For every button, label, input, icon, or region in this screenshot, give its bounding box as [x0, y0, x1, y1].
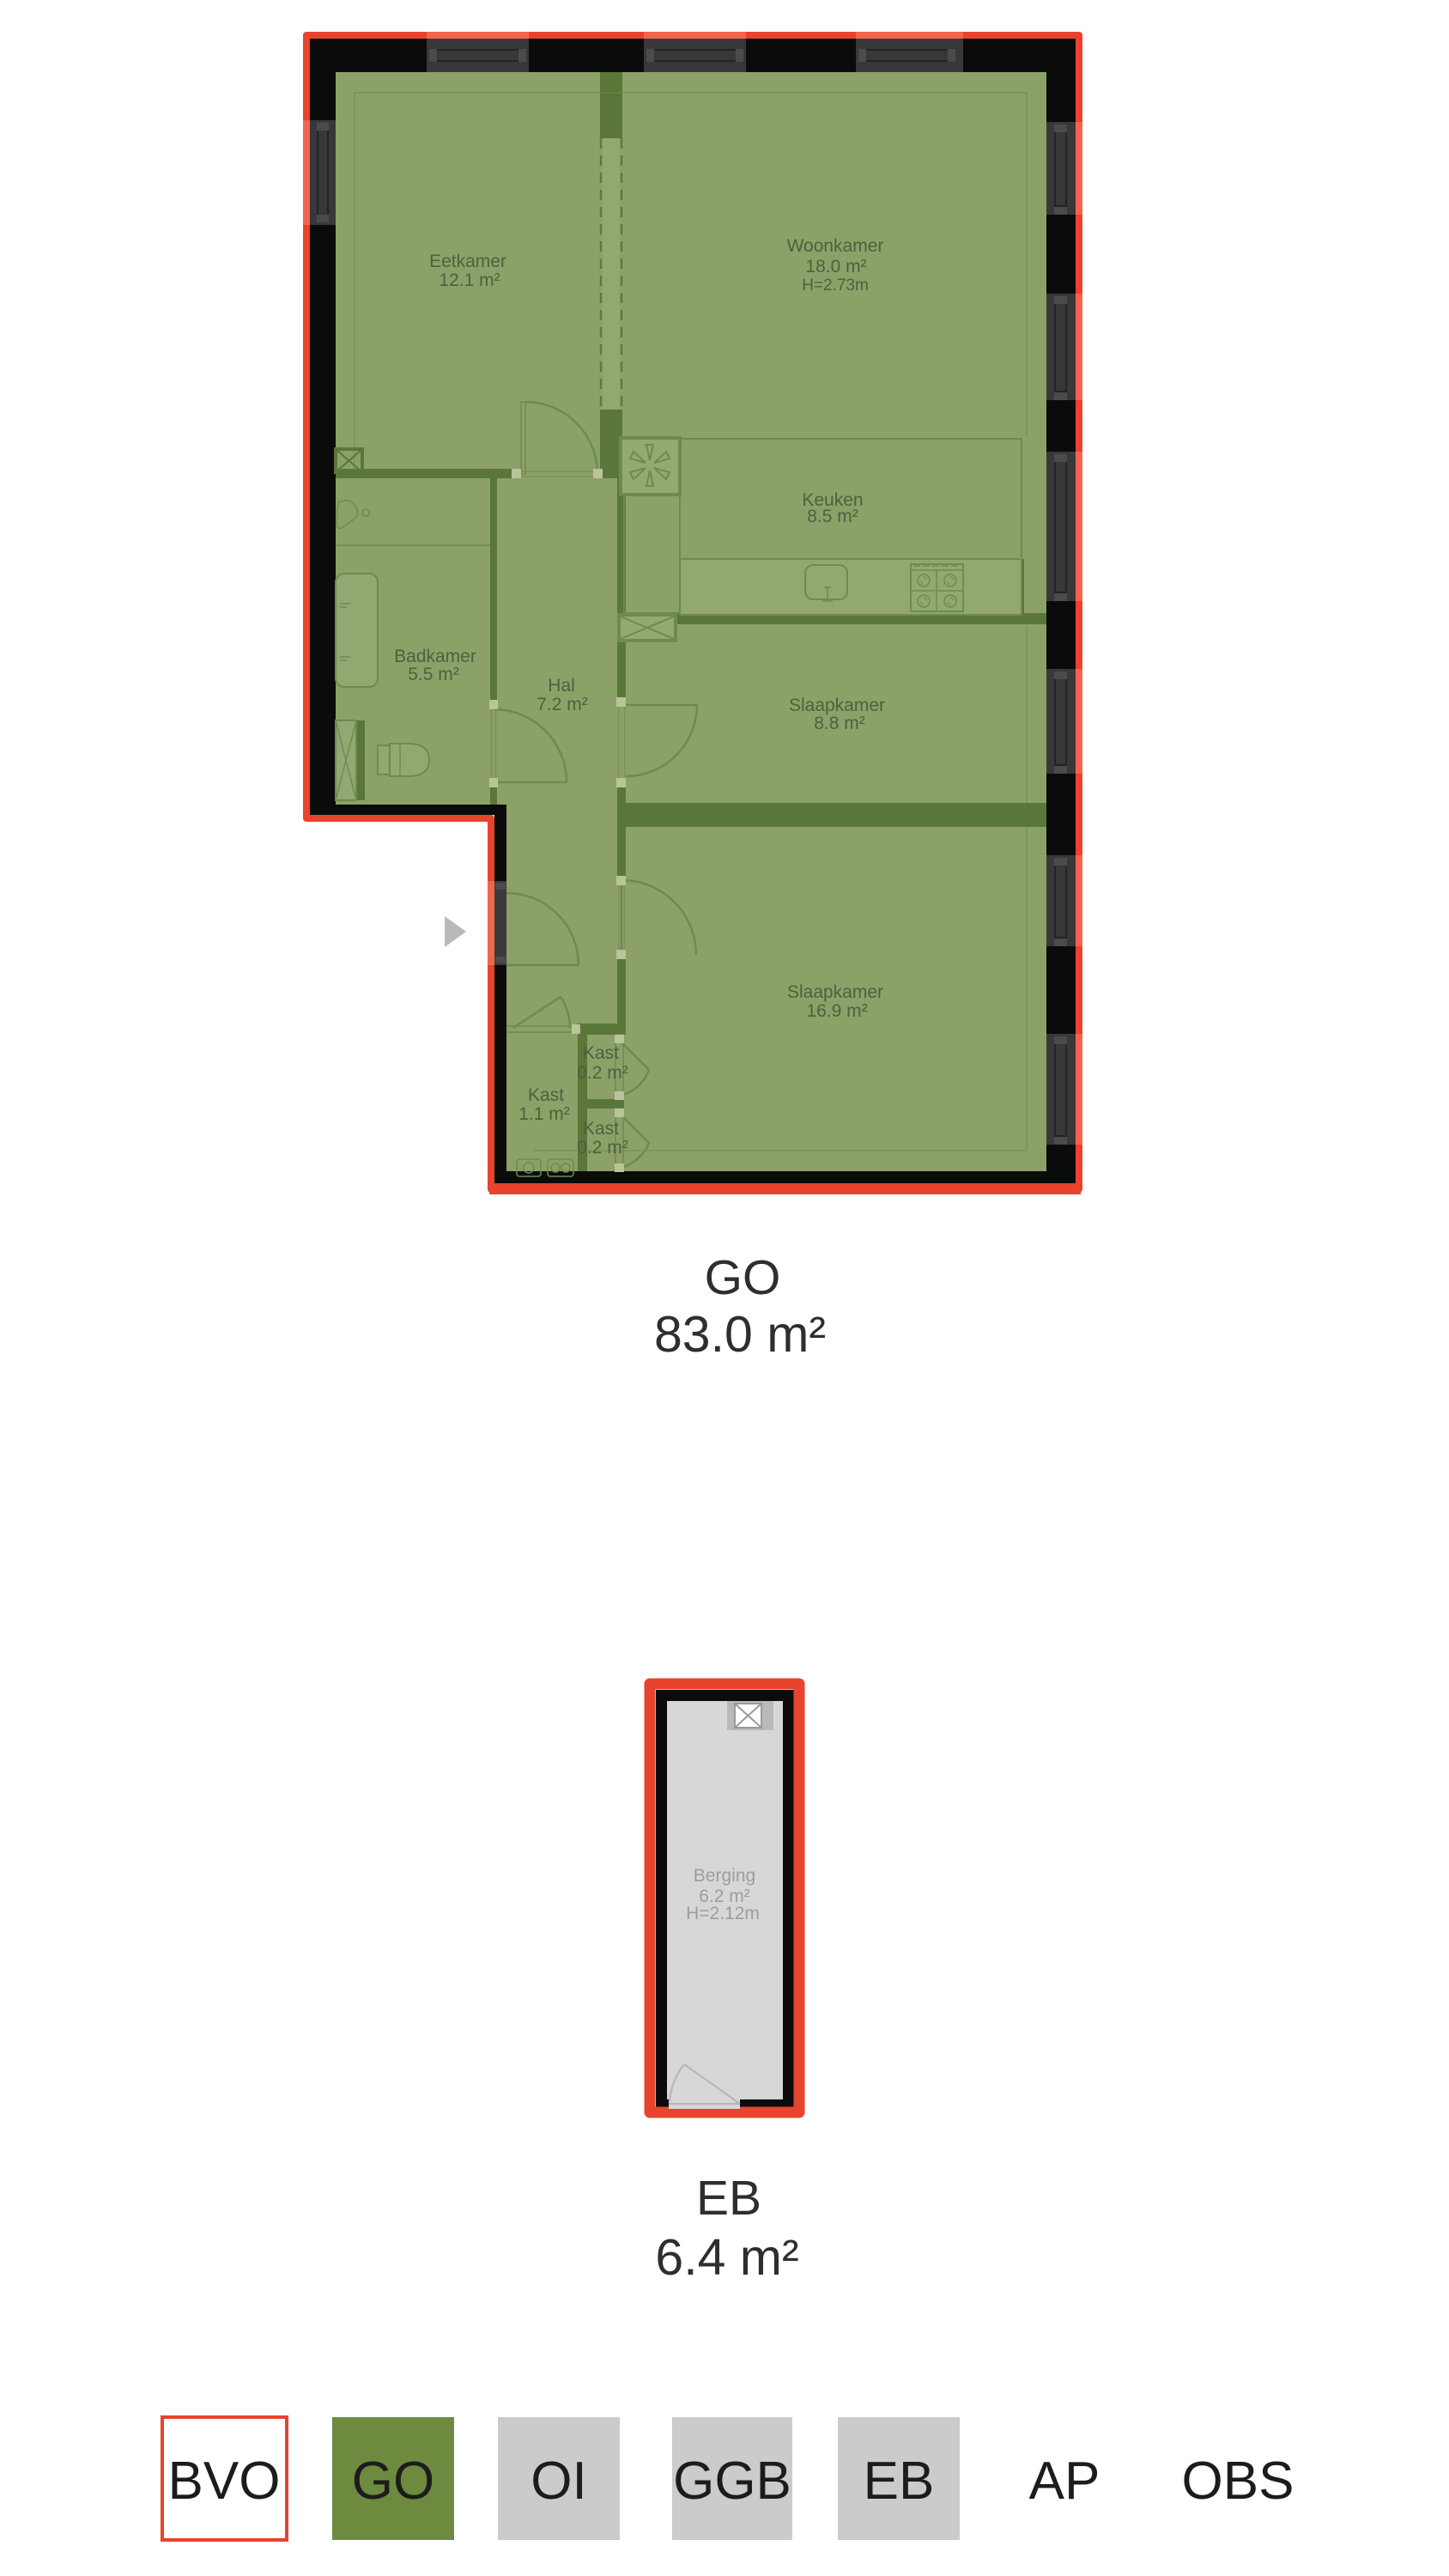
svg-text:OBS: OBS: [1182, 2451, 1294, 2511]
svg-text:16.9 m²: 16.9 m²: [806, 1001, 867, 1021]
svg-text:Woonkamer: Woonkamer: [787, 236, 884, 256]
svg-text:EB: EB: [864, 2451, 935, 2511]
svg-text:6.4 m²: 6.4 m²: [655, 2229, 798, 2286]
svg-text:12.1 m²: 12.1 m²: [439, 270, 500, 290]
svg-text:18.0 m²: 18.0 m²: [805, 257, 866, 276]
svg-text:7.2 m²: 7.2 m²: [537, 695, 588, 714]
svg-text:0.2 m²: 0.2 m²: [577, 1138, 628, 1157]
svg-text:OI: OI: [530, 2451, 586, 2511]
svg-text:Kast: Kast: [583, 1119, 619, 1139]
svg-text:EB: EB: [696, 2171, 761, 2226]
svg-text:Badkamer: Badkamer: [394, 647, 476, 666]
svg-text:GO: GO: [705, 1250, 781, 1305]
svg-text:Hal: Hal: [548, 676, 575, 696]
svg-text:1.1 m²: 1.1 m²: [518, 1104, 570, 1124]
svg-text:BVO: BVO: [168, 2451, 281, 2511]
svg-text:5.5 m²: 5.5 m²: [408, 665, 459, 684]
svg-text:Eetkamer: Eetkamer: [429, 252, 506, 271]
svg-text:8.8 m²: 8.8 m²: [814, 714, 865, 733]
svg-text:83.0 m²: 83.0 m²: [654, 1306, 826, 1363]
svg-text:GO: GO: [352, 2451, 434, 2511]
svg-text:8.5 m²: 8.5 m²: [807, 507, 858, 526]
svg-text:AP: AP: [1029, 2451, 1100, 2511]
svg-text:0.2 m²: 0.2 m²: [577, 1063, 628, 1083]
svg-text:Slaapkamer: Slaapkamer: [787, 982, 883, 1002]
svg-text:H=2.73m: H=2.73m: [802, 276, 869, 295]
svg-text:GGB: GGB: [673, 2451, 791, 2511]
svg-text:Kast: Kast: [528, 1085, 564, 1105]
svg-text:Berging: Berging: [694, 1866, 755, 1886]
svg-text:H=2.12m: H=2.12m: [686, 1904, 760, 1923]
svg-text:Slaapkamer: Slaapkamer: [789, 696, 885, 715]
svg-text:Kast: Kast: [583, 1043, 619, 1063]
